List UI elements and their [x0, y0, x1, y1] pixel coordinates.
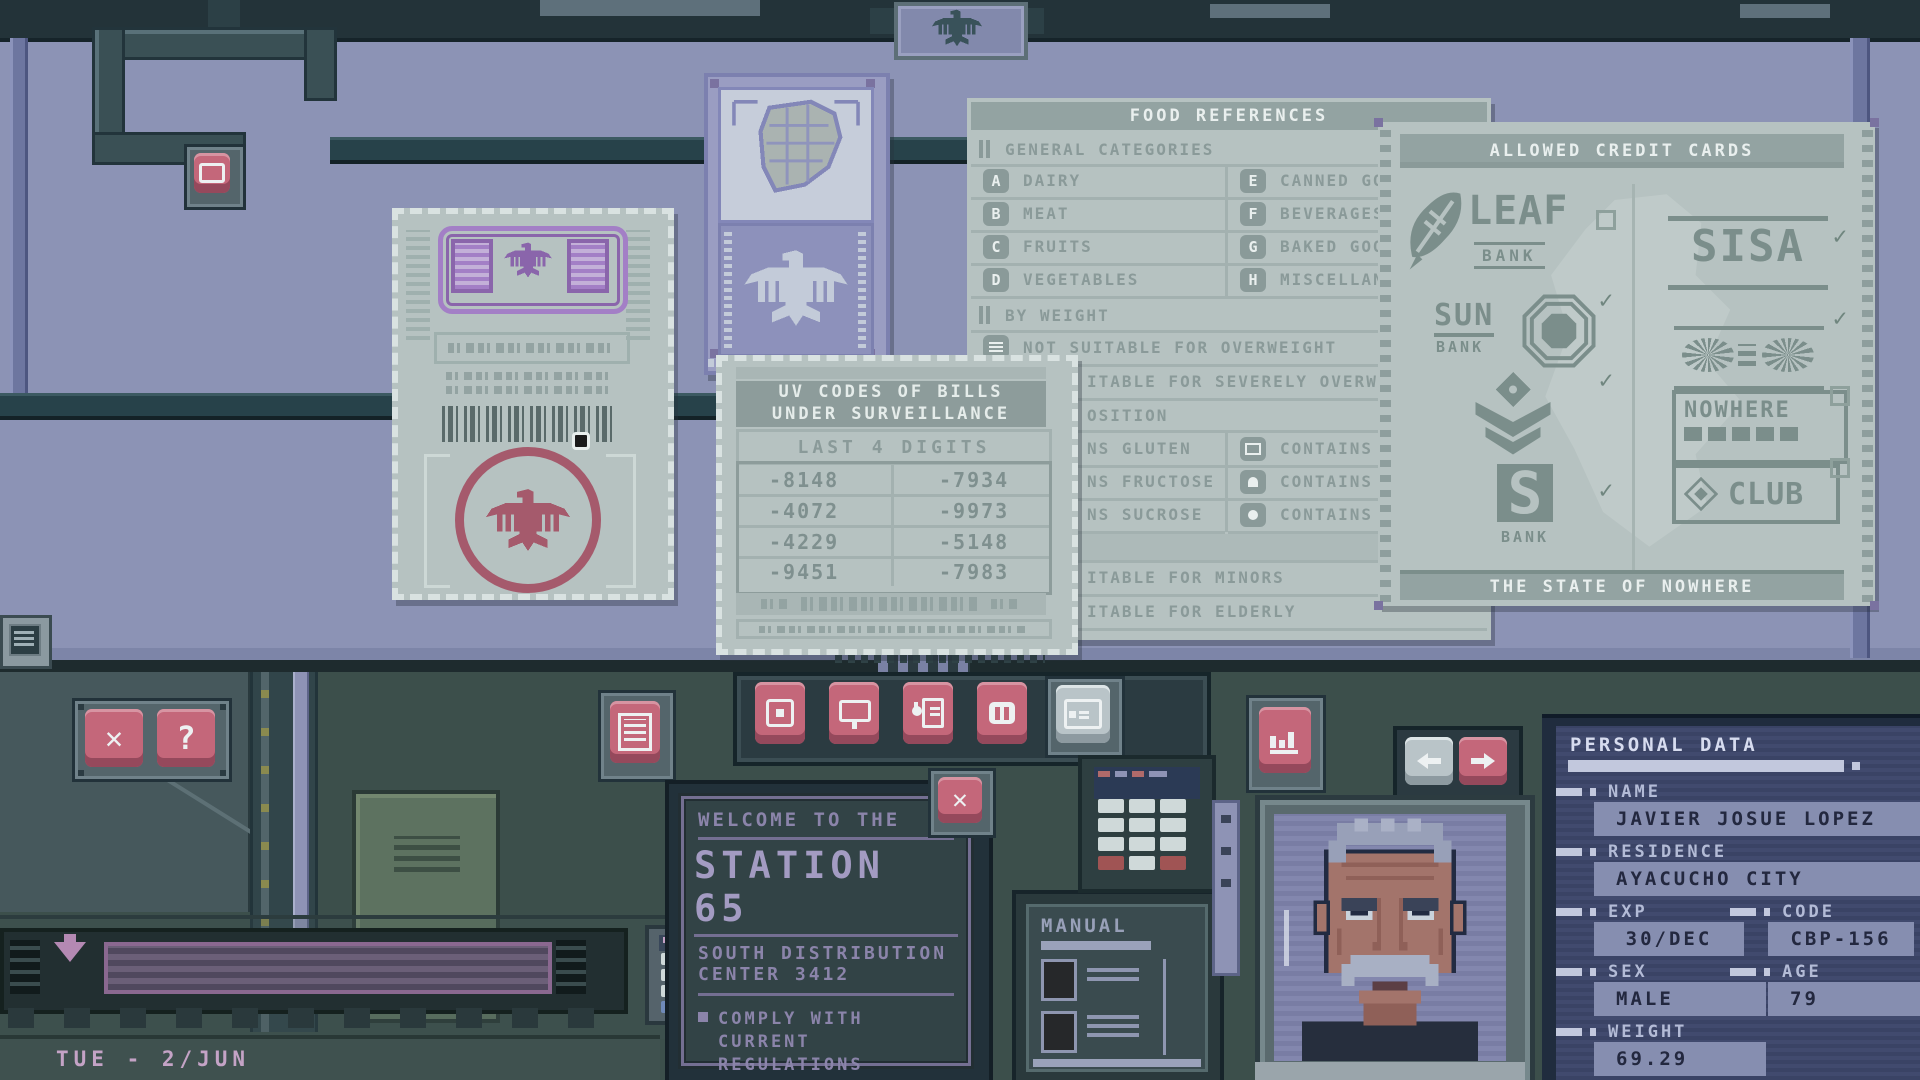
section-icon [979, 306, 993, 324]
welcome-close-plate: ✕ [928, 768, 996, 838]
prev-button[interactable] [1405, 737, 1453, 785]
leaf-icon [1404, 186, 1466, 272]
section-heading: BY WEIGHT [1005, 306, 1110, 325]
uv-code: -5148 [939, 530, 1009, 554]
toolbar-stamp-button[interactable] [755, 682, 805, 744]
stamp-roundel-area [450, 450, 606, 590]
chevron-checkbox [1596, 370, 1616, 390]
residence-value: AYACUCHO CITY [1594, 862, 1920, 896]
manual-footer-bar [1033, 1059, 1201, 1067]
card-sun-bank: SUN BANK [1434, 294, 1604, 374]
passport-document[interactable] [704, 73, 890, 375]
portrait-sill [1255, 1062, 1525, 1080]
ornament-pillar [451, 239, 493, 293]
close-icon: ✕ [105, 721, 123, 756]
field-row: WEIGHT [1556, 1022, 1687, 1042]
field-row: CODE [1730, 902, 1835, 922]
close-help-plate: ✕ ? [72, 698, 232, 782]
cipher-line [801, 597, 981, 611]
weight-label: ITABLE FOR SEVERELY OVERWE [1087, 372, 1389, 391]
credit-cards-panel[interactable]: ALLOWED CREDIT CARDS LEAF BANK SISA SUN … [1378, 122, 1875, 606]
credit-panel-title: ALLOWED CREDIT CARDS [1400, 134, 1844, 168]
category-row: BMEAT [971, 197, 1237, 233]
doc-button-plate [598, 690, 676, 782]
roller-dots [8, 1008, 608, 1028]
weight-label: WEIGHT [1608, 1022, 1687, 1042]
uv-code: -7983 [939, 560, 1009, 584]
personal-panel: PERSONAL DATA NAME JAVIER JOSUE LOPEZ RE… [1556, 726, 1920, 1080]
diamond-icon [1684, 477, 1718, 511]
passport-eagle-page [718, 223, 874, 357]
document-icon [618, 713, 652, 751]
section-heading: OSITION [1087, 406, 1168, 425]
club-checkbox [1830, 458, 1850, 478]
uv-row-line [739, 556, 1049, 559]
exp-label: EXP [1608, 902, 1648, 922]
field-row: AGE [1730, 962, 1822, 982]
age-label: AGE [1782, 962, 1822, 982]
conveyor-roller [556, 940, 586, 994]
wall-pipe [10, 38, 28, 408]
sun-bank-sub: BANK [1436, 338, 1484, 356]
dotted-border [858, 230, 866, 348]
field-tick [1556, 968, 1602, 976]
name-value: JAVIER JOSUE LOPEZ [1594, 802, 1920, 836]
key-badge: D [983, 268, 1009, 292]
key-badge: F [1240, 202, 1266, 226]
close-icon: ✕ [952, 785, 968, 815]
cursor-dot [572, 432, 590, 450]
field-tick [1556, 908, 1602, 916]
banknote-side-rules [406, 230, 430, 340]
ceiling-highlight [540, 0, 760, 16]
uv-title-line1: UV CODES OF BILLS [736, 381, 1046, 403]
chart-button[interactable] [1259, 707, 1311, 773]
uv-title: UV CODES OF BILLS UNDER SURVEILLANCE [736, 381, 1046, 427]
id-card-icon [1064, 699, 1102, 729]
sun-checkbox [1596, 290, 1616, 310]
ceiling-eagle-plaque [894, 2, 1028, 60]
conveyor-slot [0, 928, 628, 1014]
oval-bars [1738, 344, 1756, 366]
card-club: CLUB [1672, 464, 1840, 524]
wall-card-button-plate [184, 144, 246, 210]
category-label: BEVERAGES [1280, 204, 1385, 223]
welcome-bullet1: COMPLY WITH CURRENT REGULATIONS [718, 1008, 954, 1077]
pin [1374, 118, 1383, 127]
title-underline [1568, 760, 1844, 772]
category-label: BAKED GOO [1280, 237, 1385, 256]
cipher-line [759, 626, 1029, 633]
weight-value: 69.29 [1594, 1042, 1766, 1076]
welcome-sub1: SOUTH DISTRIBUTION [698, 943, 954, 964]
uv-code: -9973 [939, 499, 1009, 523]
card-s-bank: S BANK [1480, 464, 1570, 558]
fold-line [1632, 184, 1635, 584]
uv-row-line [739, 494, 1049, 497]
personal-panel-frame: PERSONAL DATA NAME JAVIER JOSUE LOPEZ RE… [1542, 714, 1920, 1080]
composition-label: NS FRUCTOSE [1087, 472, 1215, 491]
card-button[interactable] [194, 153, 230, 193]
field-tick [1556, 1028, 1602, 1036]
sex-value: MALE [1594, 982, 1766, 1016]
bar-chart-icon [1270, 726, 1300, 754]
ornament-pillar [567, 239, 609, 293]
locker-vents [394, 836, 460, 872]
eagle-icon [501, 241, 555, 279]
field-row: NAME [1556, 782, 1661, 802]
leaf-wordmark: LEAF [1468, 188, 1568, 234]
composition-label: NS GLUTEN [1087, 439, 1192, 458]
category-row: ADAIRY [971, 164, 1237, 200]
drawer-tab[interactable] [0, 615, 52, 669]
wall-bracket [92, 27, 337, 60]
film-edge [1380, 126, 1391, 602]
manual-panel: MANUAL [1012, 890, 1224, 1080]
bullet-icon [698, 1012, 708, 1022]
category-label: VEGETABLES [1023, 270, 1139, 289]
conveyor-roller [10, 940, 40, 994]
category-label: MEAT [1023, 204, 1070, 223]
document-button[interactable] [610, 701, 660, 763]
nowhere-bars [1684, 427, 1804, 441]
section-icon [979, 140, 993, 158]
category-label: DAIRY [1023, 171, 1081, 190]
oval-checkbox [1830, 308, 1850, 328]
film-edge [1862, 126, 1873, 602]
list-icon [9, 624, 41, 656]
title-underline-dot [1852, 762, 1860, 770]
visitor-portrait [1274, 814, 1506, 1061]
category-label: FRUITS [1023, 237, 1093, 256]
portrait-frame [1255, 795, 1535, 1080]
nowhere-checkbox [1830, 386, 1850, 406]
manual-divider [1163, 959, 1166, 1055]
passport-map-page [718, 87, 874, 223]
uv-title-line2: UNDER SURVEILLANCE [736, 403, 1046, 425]
key-badge: C [983, 235, 1009, 259]
toolbar-inspect-button[interactable] [903, 682, 953, 744]
help-button[interactable]: ? [157, 709, 215, 767]
weight-label: NOT SUITABLE FOR OVERWEIGHT [1023, 338, 1337, 357]
welcome-intro: WELCOME TO THE [698, 809, 954, 840]
category-label: MISCELLAN [1280, 270, 1385, 289]
leaf-bank-sub: BANK [1474, 242, 1545, 269]
manual-title: MANUAL [1041, 915, 1205, 937]
composition-label: CONTAINS [1280, 472, 1373, 491]
field-tick [1730, 968, 1776, 976]
stamp-icon [766, 699, 794, 727]
welcome-bullet-row: COMPLY WITH CURRENT REGULATIONS [698, 1008, 954, 1077]
s-bank-checkbox [1596, 480, 1616, 500]
uv-code: -4229 [769, 530, 839, 554]
club-wordmark: CLUB [1728, 477, 1804, 512]
card-icon [199, 163, 225, 183]
welcome-close-button[interactable]: ✕ [938, 777, 982, 823]
suitability-label: ITABLE FOR ELDERLY [1087, 602, 1296, 621]
manual-underline [1041, 941, 1151, 950]
close-button[interactable]: ✕ [85, 709, 143, 767]
question-icon: ? [176, 719, 195, 757]
arrow-left-icon [1417, 753, 1441, 769]
chart-button-plate [1246, 695, 1326, 793]
uv-top-strip [736, 367, 1046, 379]
serial-code-box [434, 332, 630, 364]
composition-label: CONTAINS [1280, 505, 1373, 524]
welcome-sub2: CENTER 3412 [698, 964, 954, 996]
leaf-checkbox [1596, 210, 1616, 230]
suitability-label: ITABLE FOR MINORS [1087, 568, 1285, 587]
allergen-icon [1240, 437, 1266, 461]
category-row: DVEGETABLES [971, 263, 1237, 299]
key-badge: G [1240, 235, 1266, 259]
key-badge: A [983, 169, 1009, 193]
manual-lines [1087, 1015, 1139, 1037]
ceiling-highlight [1740, 4, 1830, 18]
uv-code-table: -8148 -7934 -4072 -9973 -4229 -5148 -945… [736, 461, 1052, 595]
oval-emblem [1682, 338, 1734, 372]
manual-thumb[interactable] [1041, 1011, 1077, 1053]
cipher-line [991, 599, 1021, 609]
uv-code: -8148 [769, 468, 839, 492]
toolbar-idcard-button[interactable] [1056, 685, 1110, 743]
uv-subtitle: LAST 4 DIGITS [736, 429, 1052, 465]
field-tick [1730, 908, 1776, 916]
map-shield-icon [721, 90, 871, 220]
credit-panel-footer: THE STATE OF NOWHERE [1400, 570, 1844, 600]
name-label: NAME [1608, 782, 1661, 802]
field-tick [1556, 848, 1602, 856]
residence-label: RESIDENCE [1608, 842, 1727, 862]
code-value: CBP-156 [1768, 922, 1914, 956]
uv-bottom-strip [736, 619, 1052, 639]
stamp-toolbar [733, 672, 1211, 766]
octagon-icon [1522, 294, 1596, 368]
uv-code: -9451 [769, 560, 839, 584]
cipher-line [448, 343, 616, 353]
key-badge: E [1240, 169, 1266, 193]
portrait-screen [1274, 814, 1506, 1061]
field-row: SEX [1556, 962, 1648, 982]
date-label: TUE - 2/JUN [56, 1047, 250, 1071]
uv-row-line [739, 525, 1049, 528]
card-nowhere: NOWHERE [1672, 390, 1848, 464]
cipher-line [446, 386, 612, 394]
nav-arrows-plate [1393, 726, 1523, 802]
dotted-border [724, 230, 732, 348]
s-bank-sub: BANK [1480, 528, 1570, 546]
conveyor-tray [104, 942, 552, 994]
banknote-side-rules [626, 230, 650, 340]
key-badge: H [1240, 268, 1266, 292]
manual-thumb[interactable] [1041, 959, 1077, 1001]
manual-lines [1087, 963, 1139, 981]
eagle-icon [483, 485, 573, 555]
slots-icon [989, 702, 1015, 724]
section-heading: GENERAL CATEGORIES [1005, 140, 1214, 159]
cipher-line [761, 599, 791, 609]
uv-decor-strip [736, 593, 1046, 615]
eagle-icon [741, 242, 851, 334]
uv-code: -7934 [939, 468, 1009, 492]
code-label: CODE [1782, 902, 1835, 922]
banknote-ornament [438, 226, 628, 314]
phone-keys [1098, 799, 1186, 870]
arrow-right-icon [1471, 753, 1495, 769]
field-row: RESIDENCE [1556, 842, 1727, 862]
key-badge: B [983, 202, 1009, 226]
card-oval [1674, 326, 1824, 390]
pin [1870, 601, 1879, 610]
phone-device[interactable] [1078, 755, 1216, 893]
next-button[interactable] [1459, 737, 1507, 785]
toolbar-paddle-button[interactable] [829, 682, 879, 744]
age-value: 79 [1768, 982, 1920, 1016]
field-tick [1556, 788, 1602, 796]
allergen-icon [1240, 470, 1266, 494]
allergen-icon [1240, 503, 1266, 527]
composition-label: CONTAINS [1280, 439, 1373, 458]
date-strip: TUE - 2/JUN [0, 1035, 660, 1080]
field-row: EXP [1556, 902, 1648, 922]
sex-label: SEX [1608, 962, 1648, 982]
wall-bracket [304, 27, 337, 101]
phone-display [1094, 767, 1200, 799]
uv-codes-panel[interactable]: UV CODES OF BILLS UNDER SURVEILLANCE LAS… [716, 355, 1078, 655]
uv-code: -4072 [769, 499, 839, 523]
composition-label: NS SUCROSE [1087, 505, 1203, 524]
banknote-document[interactable] [392, 208, 674, 600]
hand-list-icon [912, 698, 944, 728]
oval-emblem [1762, 338, 1814, 372]
manual-screen: MANUAL [1026, 904, 1208, 1072]
cipher-line [446, 372, 612, 380]
ceiling-highlight [1210, 4, 1330, 18]
screen-glare [1284, 910, 1289, 966]
chevron-emblem-icon [1470, 372, 1556, 462]
sun-wordmark: SUN [1434, 298, 1494, 337]
card-sisa: SISA [1668, 216, 1828, 290]
personal-title: PERSONAL DATA [1570, 734, 1758, 756]
side-strip [1212, 800, 1240, 976]
s-wordmark: S [1497, 464, 1553, 522]
card-leaf-bank: LEAF BANK [1404, 186, 1584, 276]
pin [1374, 601, 1383, 610]
game-scene: FOOD REFERENCES GENERAL CATEGORIES ADAIR… [0, 0, 1920, 1080]
eagle-roundel [455, 447, 601, 593]
category-row: CFRUITS [971, 230, 1237, 266]
eagle-icon [928, 8, 986, 48]
toolbar-slots-button[interactable] [977, 682, 1027, 744]
arrow-stem [64, 934, 76, 946]
nowhere-wordmark: NOWHERE [1684, 398, 1836, 423]
pin [1870, 118, 1879, 127]
station-title: STATION 65 [694, 844, 958, 937]
sisa-checkbox [1830, 226, 1850, 246]
exp-value: 30/DEC [1594, 922, 1744, 956]
paddle-sign-icon [839, 698, 869, 728]
idcard-button-plate [1045, 676, 1125, 758]
